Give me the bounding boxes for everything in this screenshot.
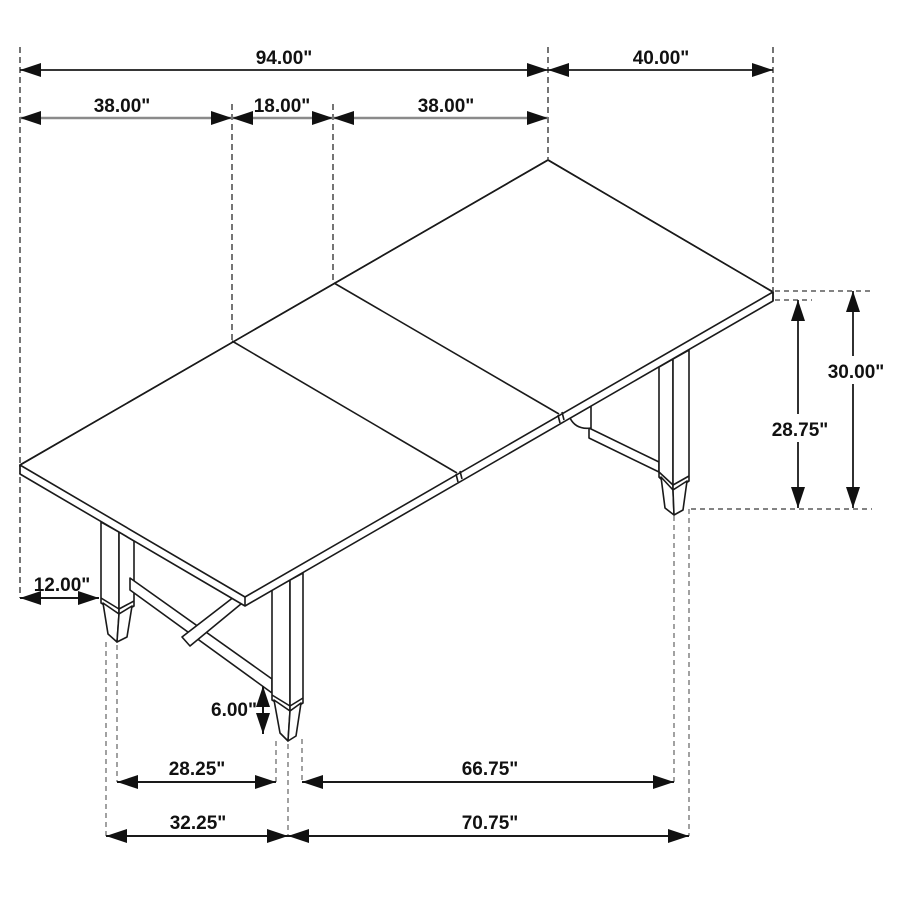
dimension-diagram-page: 94.00" 40.00" 38.00" 18.00" 38.00" 12.00…	[0, 0, 900, 900]
dim-leg-inset-label: 12.00"	[34, 575, 91, 596]
dimension-arrowhead	[211, 111, 232, 125]
dim-width-label: 40.00"	[633, 48, 690, 69]
dimension-arrowhead	[267, 829, 288, 843]
dimension-arrowhead	[527, 63, 548, 77]
dimension-arrowhead	[333, 111, 354, 125]
dim-end-leg-inner-label: 28.25"	[169, 759, 226, 780]
dim-underside-height-label: 28.75"	[772, 420, 829, 441]
right-stretcher	[589, 428, 659, 472]
dimension-arrowhead	[106, 829, 127, 843]
dimension-arrowhead	[668, 829, 689, 843]
dimension-arrowhead	[846, 291, 860, 312]
dim-end-leg-outer-label: 32.25"	[170, 813, 227, 834]
dimension-arrowhead	[232, 111, 253, 125]
dimension-arrowhead	[791, 487, 805, 508]
dim-left-section-label: 38.00"	[94, 96, 151, 117]
dimension-arrowhead	[255, 775, 276, 789]
dimension-arrowhead	[20, 111, 41, 125]
dim-center-leaf-label: 18.00"	[254, 96, 311, 117]
front-left-leg	[272, 573, 303, 741]
dim-overall-length-label: 94.00"	[256, 48, 313, 69]
dimension-arrowhead	[302, 775, 323, 789]
dimension-arrowhead	[791, 300, 805, 321]
dimension-arrowhead	[527, 111, 548, 125]
front-right-leg	[659, 350, 689, 515]
dim-long-leg-outer-label: 70.75"	[462, 813, 519, 834]
dimension-arrowhead	[548, 63, 569, 77]
dim-right-section-label: 38.00"	[418, 96, 475, 117]
dim-long-leg-inner-label: 66.75"	[462, 759, 519, 780]
dimension-arrowhead	[752, 63, 773, 77]
dimension-arrowhead	[20, 63, 41, 77]
dimension-arrowhead	[312, 111, 333, 125]
dimension-arrowhead	[846, 487, 860, 508]
dimension-arrowhead	[256, 713, 270, 734]
dimension-arrowhead	[117, 775, 138, 789]
dimension-arrowhead	[653, 775, 674, 789]
back-left-leg	[101, 522, 134, 642]
dim-foot-height-label: 6.00"	[211, 700, 257, 721]
dimension-arrowhead	[288, 829, 309, 843]
dim-table-height-label: 30.00"	[828, 362, 885, 383]
table-dimension-drawing: 94.00" 40.00" 38.00" 18.00" 38.00" 12.00…	[0, 0, 900, 900]
